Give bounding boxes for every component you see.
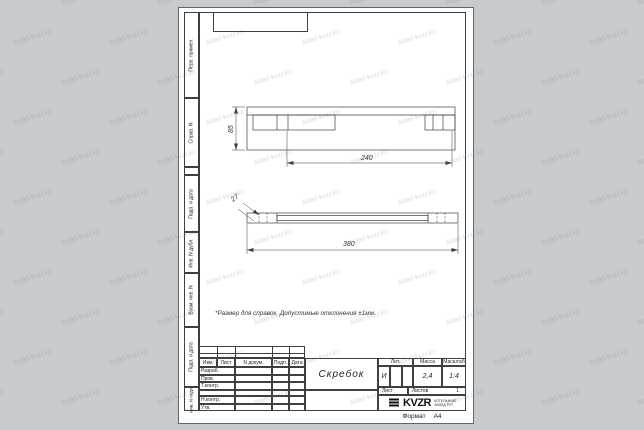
watermark-text: kotel-kvzr.kz bbox=[62, 0, 101, 6]
margin-label: Справ. N bbox=[189, 122, 195, 143]
watermark-text: kotel-kvzr.kz bbox=[14, 109, 53, 127]
watermark-text: kotel-kvzr.kz bbox=[542, 149, 581, 167]
drawing-views: 85 240 27 380 bbox=[199, 32, 466, 345]
watermark-text: kotel-kvzr.kz bbox=[494, 109, 533, 127]
dimension-front-length: 380 bbox=[247, 224, 458, 254]
watermark-text: kotel-kvzr.kz bbox=[0, 0, 5, 6]
watermark-text: kotel-kvzr.kz bbox=[494, 189, 533, 207]
margin-label: Перв. примен. bbox=[189, 38, 195, 71]
watermark-text: kotel-kvzr.kz bbox=[542, 229, 581, 247]
row-prov: Пров. bbox=[199, 375, 235, 382]
margin-box-sprav-n: Справ. N bbox=[184, 98, 199, 167]
watermark-text: kotel-kvzr.kz bbox=[590, 269, 629, 287]
watermark-text: kotel-kvzr.kz bbox=[110, 109, 149, 127]
watermark-text: kotel-kvzr.kz bbox=[62, 309, 101, 327]
margin-box-inv-dubl: Инв. N дубл. bbox=[184, 232, 199, 273]
watermark-text: kotel-kvzr.kz bbox=[638, 389, 644, 407]
margin-label: Подп. и дата bbox=[189, 342, 195, 371]
grid-line bbox=[217, 347, 218, 357]
sheets-cell: Листов 1 bbox=[408, 387, 466, 395]
empty-cell bbox=[272, 367, 289, 375]
watermark-text: kotel-kvzr.kz bbox=[62, 389, 101, 407]
empty-cell bbox=[402, 366, 413, 387]
format-value: А4 bbox=[434, 413, 442, 420]
watermark-text: kotel-kvzr.kz bbox=[0, 69, 5, 87]
margin-box-podp-data-1: Подп. и дата bbox=[184, 175, 199, 232]
watermark-text: kotel-kvzr.kz bbox=[0, 149, 5, 167]
grid-line bbox=[289, 347, 290, 357]
watermark-text: kotel-kvzr.kz bbox=[590, 29, 629, 47]
sheet-cell: Лист bbox=[378, 387, 408, 395]
mass-value-cell: 2,4 bbox=[413, 366, 442, 387]
watermark-text: kotel-kvzr.kz bbox=[590, 349, 629, 367]
drawing-page: Перв. примен. Справ. N Подп. и дата Инв.… bbox=[0, 0, 644, 430]
watermark-text: kotel-kvzr.kz bbox=[14, 349, 53, 367]
format-label: Формат bbox=[402, 413, 425, 420]
watermark-text: kotel-kvzr.kz bbox=[638, 69, 644, 87]
row-utv: Утв. bbox=[199, 404, 235, 411]
empty-cell bbox=[289, 367, 305, 375]
watermark-text: kotel-kvzr.kz bbox=[542, 389, 581, 407]
watermark-text: kotel-kvzr.kz bbox=[494, 29, 533, 47]
material-cell bbox=[305, 390, 378, 411]
watermark-text: kotel-kvzr.kz bbox=[590, 109, 629, 127]
lit-value-cell: И bbox=[378, 366, 390, 387]
watermark-text: kotel-kvzr.kz bbox=[494, 349, 533, 367]
watermark-text: kotel-kvzr.kz bbox=[110, 29, 149, 47]
format-footer: Формат А4 bbox=[378, 413, 466, 420]
watermark-text: kotel-kvzr.kz bbox=[110, 349, 149, 367]
company-cell: KVZR КОТЕЛЬНЫЙ ЗАВОД РЗТ bbox=[378, 395, 466, 411]
scale-header: Масштаб bbox=[442, 358, 466, 366]
empty-cell bbox=[289, 404, 305, 411]
dimension-top-height: 85 bbox=[228, 107, 245, 150]
top-view-right-plate bbox=[425, 115, 455, 130]
revision-rows bbox=[199, 346, 305, 358]
empty-cell bbox=[235, 404, 272, 411]
margin-label: Подп. и дата bbox=[189, 189, 195, 218]
empty-cell bbox=[289, 396, 305, 404]
front-view-blade-band bbox=[277, 216, 428, 221]
top-view-left-plate bbox=[253, 115, 335, 130]
watermark-text: kotel-kvzr.kz bbox=[14, 29, 53, 47]
top-view bbox=[247, 107, 455, 150]
dim-240: 240 bbox=[360, 155, 373, 162]
sheets-label: Листов bbox=[412, 388, 428, 394]
grid-line bbox=[235, 347, 236, 357]
mass-header: Масса bbox=[413, 358, 442, 366]
empty-cell bbox=[235, 375, 272, 382]
watermark-text: kotel-kvzr.kz bbox=[0, 309, 5, 327]
watermark-text: kotel-kvzr.kz bbox=[446, 0, 485, 6]
margin-label: Инв. N дубл. bbox=[189, 238, 195, 267]
empty-cell bbox=[235, 396, 272, 404]
row-nkontr: Н.контр. bbox=[199, 396, 235, 404]
empty-cell bbox=[289, 375, 305, 382]
company-logo-text: KVZR bbox=[403, 397, 431, 409]
reference-note: *Размер для справок. Допустимые отклонен… bbox=[215, 310, 376, 317]
header-list: Лист bbox=[217, 358, 235, 367]
margin-box-vzam-inv: Взам. инв. N bbox=[184, 273, 199, 327]
dimension-top-length: 240 bbox=[287, 131, 452, 167]
watermark-text: kotel-kvzr.kz bbox=[638, 309, 644, 327]
watermark-text: kotel-kvzr.kz bbox=[62, 149, 101, 167]
watermark-text: kotel-kvzr.kz bbox=[14, 189, 53, 207]
front-view-outline bbox=[247, 213, 458, 223]
row-razrab: Разраб. bbox=[199, 367, 235, 375]
watermark-text: kotel-kvzr.kz bbox=[110, 189, 149, 207]
dim-380: 380 bbox=[343, 241, 355, 248]
watermark-text: kotel-kvzr.kz bbox=[0, 229, 5, 247]
watermark-text: kotel-kvzr.kz bbox=[542, 69, 581, 87]
empty-cell bbox=[235, 367, 272, 375]
row-tkontr: Т.контр. bbox=[199, 382, 235, 390]
dim-27: 27 bbox=[229, 193, 241, 205]
watermark-text: kotel-kvzr.kz bbox=[14, 269, 53, 287]
empty-cell bbox=[272, 375, 289, 382]
dimension-front-height: 27 bbox=[229, 193, 259, 221]
header-data: Дата bbox=[289, 358, 305, 367]
watermark-text: kotel-kvzr.kz bbox=[62, 229, 101, 247]
margin-box-inv-podl: Инв. N подл. bbox=[184, 387, 199, 411]
watermark-text: kotel-kvzr.kz bbox=[590, 189, 629, 207]
margin-label: Взам. инв. N bbox=[189, 285, 195, 314]
part-name-cell: Скребок bbox=[305, 358, 378, 390]
front-view bbox=[247, 213, 458, 223]
watermark-text: kotel-kvzr.kz bbox=[494, 269, 533, 287]
scale-value-cell: 1:4 bbox=[442, 366, 466, 387]
margin-label: Инв. N подл. bbox=[189, 386, 194, 412]
empty-cell bbox=[272, 396, 289, 404]
company-tagline-line2: ЗАВОД РЗТ bbox=[434, 403, 456, 407]
grid-line bbox=[272, 347, 273, 357]
margin-box-podp-data-2: Подп. и дата bbox=[184, 327, 199, 387]
watermark-text: kotel-kvzr.kz bbox=[62, 69, 101, 87]
top-view-outline bbox=[247, 107, 455, 150]
lit-header: Лит. bbox=[378, 358, 413, 366]
empty-cell bbox=[235, 382, 272, 390]
header-podp: Подп. bbox=[272, 358, 289, 367]
watermark-text: kotel-kvzr.kz bbox=[110, 269, 149, 287]
watermark-text: kotel-kvzr.kz bbox=[350, 0, 389, 6]
empty-cell bbox=[390, 366, 402, 387]
company-logo: KVZR КОТЕЛЬНЫЙ ЗАВОД РЗТ bbox=[388, 397, 456, 409]
watermark-text: kotel-kvzr.kz bbox=[638, 0, 644, 6]
header-n-dokum: N докум. bbox=[235, 358, 272, 367]
top-designation-box bbox=[213, 12, 308, 32]
company-tagline: КОТЕЛЬНЫЙ ЗАВОД РЗТ bbox=[434, 399, 456, 407]
watermark-text: kotel-kvzr.kz bbox=[638, 149, 644, 167]
margin-box-perv-primen: Перв. примен. bbox=[184, 12, 199, 98]
empty-cell bbox=[272, 382, 289, 390]
watermark-text: kotel-kvzr.kz bbox=[542, 309, 581, 327]
empty-cell bbox=[272, 404, 289, 411]
watermark-text: kotel-kvzr.kz bbox=[158, 0, 197, 6]
header-izm: Изм. bbox=[199, 358, 217, 367]
empty-cell bbox=[289, 382, 305, 390]
watermark-text: kotel-kvzr.kz bbox=[254, 0, 293, 6]
part-name: Скребок bbox=[319, 369, 365, 380]
dim-85: 85 bbox=[228, 125, 235, 133]
watermark-text: kotel-kvzr.kz bbox=[638, 229, 644, 247]
kvzr-logo-icon bbox=[388, 397, 400, 409]
margin-box-empty bbox=[184, 167, 199, 175]
sheets-value: 1 bbox=[456, 388, 459, 394]
watermark-text: kotel-kvzr.kz bbox=[0, 389, 5, 407]
watermark-text: kotel-kvzr.kz bbox=[542, 0, 581, 6]
